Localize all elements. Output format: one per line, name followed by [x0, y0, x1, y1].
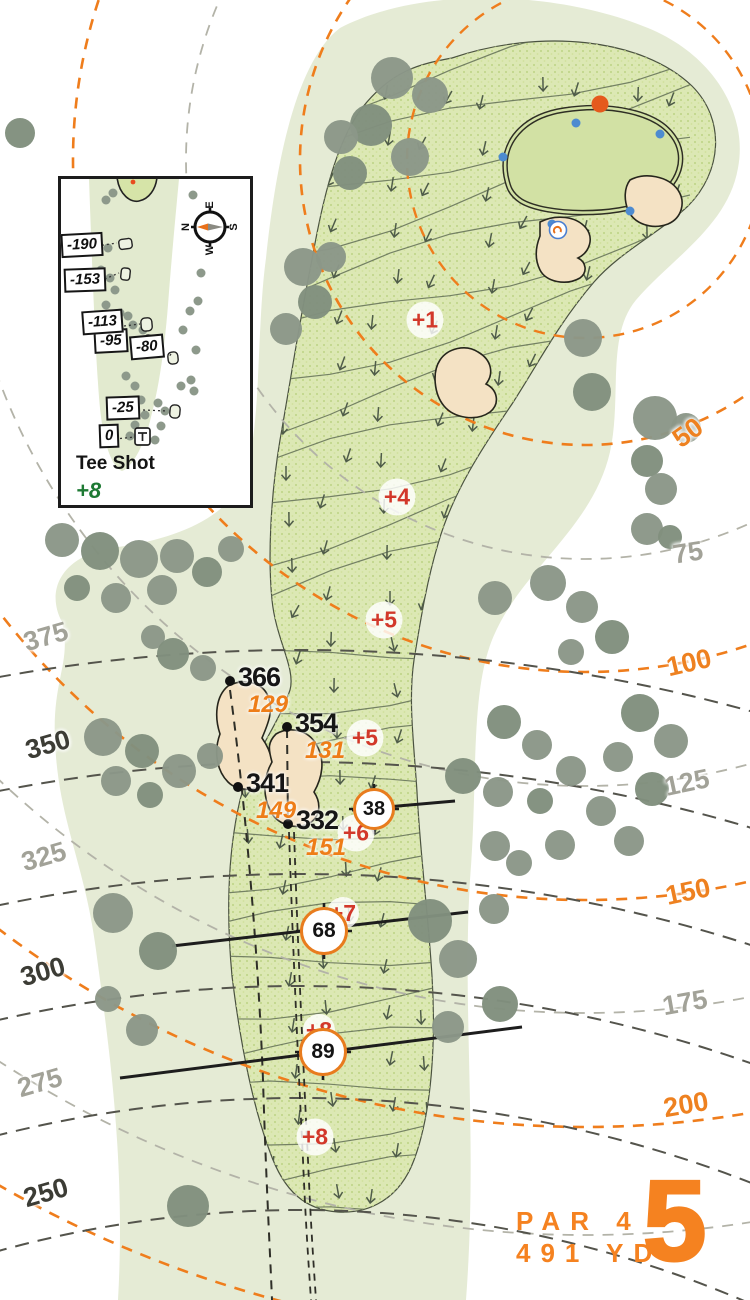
inset-title: Tee Shot	[76, 453, 155, 475]
inset-marker-neg25: -25	[106, 395, 140, 420]
carry-yardage: 332	[296, 807, 346, 834]
pin-position	[592, 96, 609, 113]
inset-marker-neg190: -190	[60, 232, 103, 258]
inset-marker-neg153: -153	[64, 267, 107, 292]
slope-marker-plus5-a: +5	[366, 602, 403, 639]
slope-marker-plus4: +4	[379, 479, 416, 516]
compass-n: N	[180, 223, 192, 231]
carry-yardage: 341	[246, 770, 296, 797]
slope-marker-plus1: +1	[407, 302, 444, 339]
inset-marker-neg113: -113	[81, 309, 123, 336]
inset-tee-marker-icon	[135, 428, 150, 445]
green-feature-marker	[550, 222, 567, 239]
inset-elevation: +8	[76, 478, 101, 504]
carry-circle-68: 68	[300, 907, 348, 955]
slope-marker-plus8-b: +8	[297, 1119, 334, 1156]
carry-circle-89: 89	[299, 1028, 347, 1076]
compass-e: E	[204, 201, 216, 208]
par-label: PAR 4	[516, 1206, 662, 1238]
yardage-point-366: 366 129	[238, 664, 288, 717]
yardage-point-354: 354 131	[295, 710, 345, 763]
to-green-yardage: 151	[306, 836, 346, 860]
inset-marker-zero: 0	[99, 424, 120, 448]
to-green-yardage: 129	[248, 693, 288, 717]
carry-yardage: 366	[238, 664, 288, 691]
compass-icon: E S W N	[180, 201, 240, 255]
to-green-yardage: 149	[256, 799, 296, 823]
yardage-book-page: 375 350 325 300 275 250 50 75 100 125 15…	[0, 0, 750, 1300]
hole-info: PAR 4 491 YD	[516, 1206, 662, 1269]
compass-w: W	[204, 244, 216, 255]
yardage-point-332: 332 151	[296, 807, 346, 860]
carry-circle-38: 38	[353, 788, 395, 830]
to-green-yardage: 131	[305, 739, 345, 763]
hole-number: 5	[643, 1168, 706, 1276]
carry-yardage: 354	[295, 710, 345, 737]
compass-s: S	[228, 223, 240, 230]
green-distance-label-75: 75	[671, 535, 706, 570]
yardage-label: 491 YD	[516, 1238, 662, 1270]
slope-marker-plus5-b: +5	[347, 720, 384, 757]
inset-pin	[131, 180, 136, 185]
tee-shot-inset: E S W N -190 -153 -95 -113 -80 -25 0 Tee…	[58, 176, 253, 508]
inset-marker-neg80: -80	[129, 334, 165, 361]
yardage-point-341: 341 149	[246, 770, 296, 823]
